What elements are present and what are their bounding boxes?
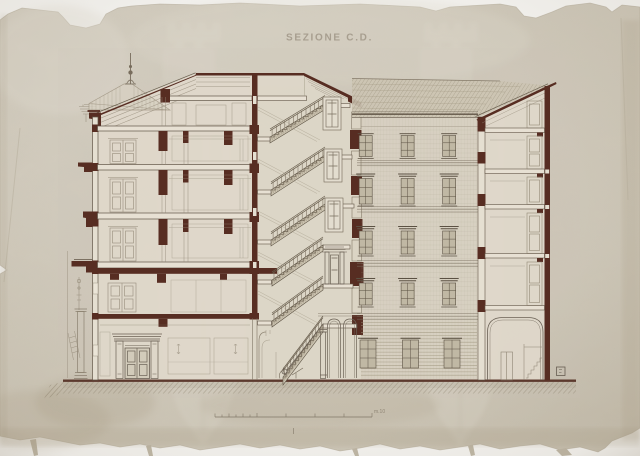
svg-text:SEZIONE C.D.: SEZIONE C.D.	[286, 33, 373, 44]
svg-text:m.10: m.10	[374, 409, 385, 415]
